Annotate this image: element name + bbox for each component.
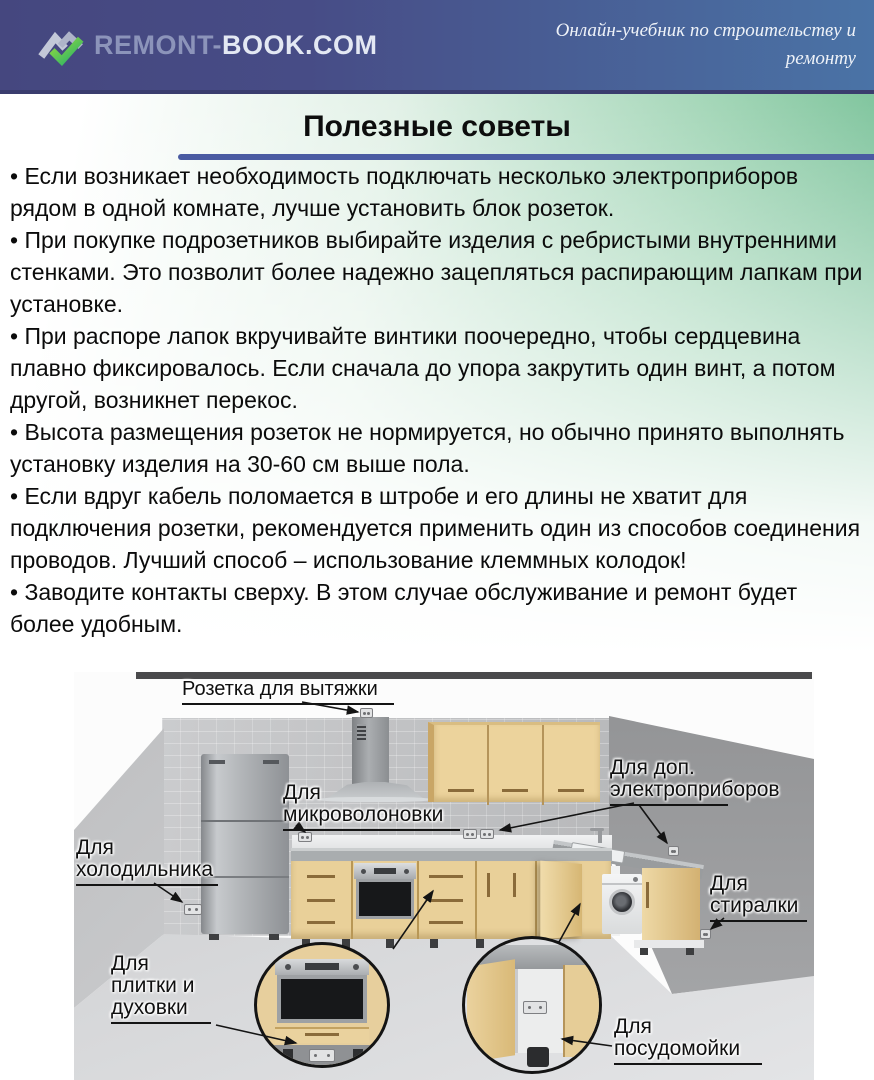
label-hood-socket: Розетка для вытяжки bbox=[182, 678, 394, 705]
washer-socket bbox=[700, 929, 711, 939]
tip-1: • Если возникает необходимость подключат… bbox=[10, 160, 864, 224]
dishwasher-socket bbox=[523, 1001, 547, 1014]
label-dishwasher: Для посудомойки bbox=[614, 1016, 762, 1065]
fridge-socket bbox=[184, 904, 202, 915]
faucet-spout bbox=[590, 828, 604, 831]
oven-socket bbox=[309, 1049, 335, 1062]
tip-6: • Заводите контакты сверху. В этом случа… bbox=[10, 576, 864, 640]
label-stove-oven: Для плитки и духовки bbox=[111, 953, 211, 1024]
tip-5: • Если вдруг кабель поломается в штробе … bbox=[10, 480, 864, 576]
microwave-socket bbox=[298, 832, 312, 842]
built-in-oven bbox=[354, 863, 416, 925]
extra-socket-right bbox=[668, 846, 679, 856]
tip-4: • Высота размещения розеток не нормирует… bbox=[10, 416, 864, 480]
brand-primary: REMONT- bbox=[94, 30, 222, 60]
tagline-line-2: ремонту bbox=[556, 45, 856, 74]
right-plinth bbox=[634, 940, 704, 948]
dishwasher-socket-inset bbox=[462, 936, 602, 1074]
tip-2: • При покупке подрозетников выбирайте из… bbox=[10, 224, 864, 320]
page: REMONT-BOOK.COM Онлайн-учебник по строит… bbox=[0, 0, 874, 1080]
label-washer: Для стиралки bbox=[710, 873, 807, 922]
extra-socket-2 bbox=[480, 829, 494, 839]
site-header: REMONT-BOOK.COM Онлайн-учебник по строит… bbox=[0, 0, 874, 90]
extra-socket-1 bbox=[463, 829, 477, 839]
site-logo: REMONT-BOOK.COM bbox=[38, 23, 378, 67]
page-content: Полезные советы • Если возникает необход… bbox=[0, 94, 874, 1080]
oven-socket-inset bbox=[254, 942, 390, 1068]
logo-mountain-check-icon bbox=[38, 23, 84, 67]
cooker-hood-vent bbox=[357, 724, 366, 740]
corner-door-ajar bbox=[540, 861, 582, 940]
right-base-cabinet bbox=[642, 868, 700, 944]
hood-socket bbox=[360, 708, 373, 718]
label-fridge: Для холодильника bbox=[76, 837, 218, 886]
kitchen-diagram: Розетка для вытяжки Для микроволоновки Д… bbox=[74, 672, 814, 1080]
page-title: Полезные советы bbox=[0, 110, 874, 144]
tagline-line-1: Онлайн-учебник по строительству и bbox=[556, 17, 856, 46]
label-microwave: Для микроволоновки bbox=[283, 782, 460, 831]
tips-list: • Если возникает необходимость подключат… bbox=[10, 160, 864, 640]
tip-3: • При распоре лапок вкручивайте винтики … bbox=[10, 320, 864, 416]
brand-secondary: BOOK.COM bbox=[222, 30, 378, 60]
countertop bbox=[291, 848, 612, 862]
washing-machine bbox=[602, 874, 642, 934]
site-tagline: Онлайн-учебник по строительству и ремонт… bbox=[556, 17, 856, 74]
label-extra-appliances: Для доп. электроприборов bbox=[610, 757, 780, 806]
brand-text: REMONT-BOOK.COM bbox=[94, 30, 378, 61]
